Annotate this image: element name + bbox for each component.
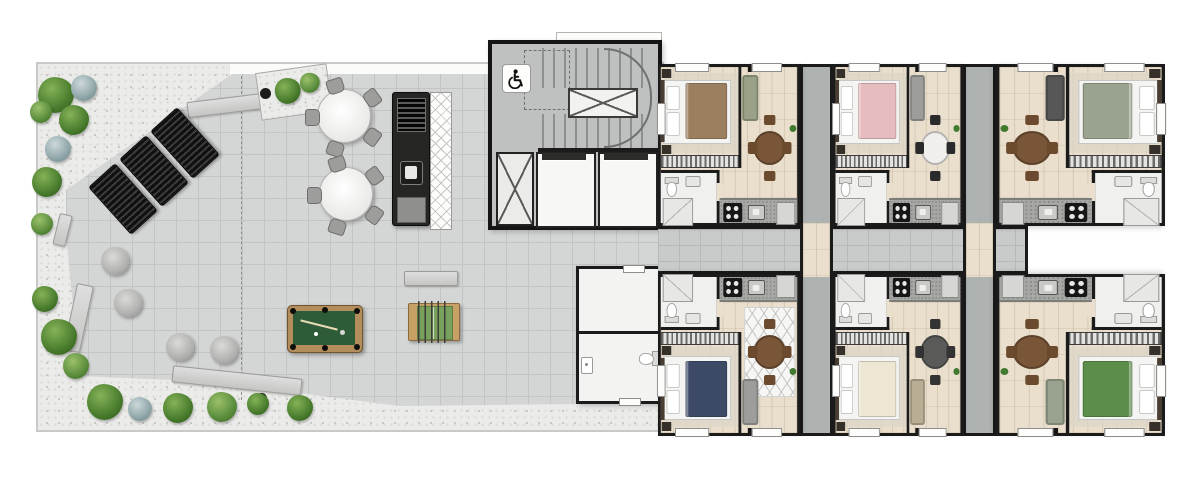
bathroom	[661, 277, 720, 330]
nightstand	[836, 346, 845, 355]
window-opening	[1156, 365, 1166, 397]
nightstand	[836, 422, 845, 431]
stove-burner	[895, 289, 899, 294]
bean-bag-pouf	[101, 247, 129, 275]
dining-chair	[915, 142, 924, 154]
bean-bag-pouf	[210, 336, 238, 364]
service-shaft	[496, 152, 534, 226]
barbecue-grill	[397, 98, 426, 132]
shower	[1123, 198, 1159, 226]
bean-bag-pouf	[166, 333, 194, 361]
bed-blanket	[685, 83, 727, 139]
terrace-chair	[305, 109, 320, 126]
toilet-bowl	[841, 303, 851, 318]
terrace-chair	[307, 187, 322, 204]
dining-chair	[764, 171, 775, 181]
stove-burner	[1078, 289, 1084, 294]
bed-blanket	[858, 83, 896, 139]
room-divider-wall	[579, 331, 659, 334]
plant-pot	[953, 368, 959, 375]
bathroom	[1092, 170, 1162, 223]
stove-burner	[726, 281, 731, 286]
sofa	[910, 75, 925, 121]
shrub	[273, 76, 302, 105]
closet	[661, 332, 741, 345]
shower	[1123, 274, 1159, 302]
terrace-round-table	[319, 167, 373, 221]
kitchen	[999, 198, 1091, 223]
stove-burner	[1069, 206, 1075, 211]
bathroom	[661, 170, 720, 223]
bed-blanket	[1083, 361, 1133, 417]
stove-burner	[1069, 281, 1075, 286]
dining-table	[1013, 335, 1051, 369]
window-opening	[1017, 63, 1053, 72]
plant-pot	[1001, 125, 1009, 132]
kitchen	[889, 198, 960, 223]
window-opening	[1104, 428, 1145, 437]
stove-burner	[734, 289, 739, 294]
dining-chair	[764, 375, 775, 385]
foosball-table	[408, 303, 460, 341]
bed-pillow	[1139, 390, 1155, 414]
bed-pillow	[667, 364, 680, 388]
plant-pot	[790, 125, 797, 132]
stove	[893, 203, 910, 222]
dining-chair	[782, 346, 791, 358]
bathroom-basin	[1114, 176, 1132, 187]
bean-bag-pouf	[114, 289, 142, 317]
pool-ball	[314, 332, 318, 336]
bathroom-basin	[858, 176, 872, 187]
dining-chair	[915, 346, 924, 358]
bathroom-basin	[685, 313, 700, 324]
kitchen	[999, 277, 1091, 302]
elevator-door	[542, 153, 586, 161]
balcony-strip	[963, 64, 996, 226]
stove-burner	[895, 281, 899, 286]
dining-chair	[748, 346, 757, 358]
closet	[661, 155, 741, 168]
stove-burner	[895, 206, 899, 211]
refrigerator	[776, 202, 795, 225]
kitchen-sink	[915, 280, 931, 295]
shower	[837, 198, 865, 226]
elevator-cab	[598, 152, 658, 228]
stove-burner	[726, 206, 731, 211]
refrigerator	[1002, 202, 1025, 225]
refrigerator	[776, 275, 795, 298]
sink-bowl	[1044, 285, 1052, 291]
pool-pocket	[322, 307, 328, 313]
stove-burner	[734, 206, 739, 211]
window-opening	[832, 365, 840, 397]
window-opening	[849, 428, 880, 437]
bed-pillow	[667, 390, 680, 414]
bathroom-basin	[685, 176, 700, 187]
expansion-joint-line	[241, 76, 242, 400]
stove-burner	[1078, 281, 1084, 286]
dining-chair	[764, 319, 775, 329]
stove-burner	[734, 281, 739, 286]
pool-pocket	[322, 345, 328, 351]
stove	[723, 203, 742, 222]
shower	[837, 274, 865, 302]
bed-pillow	[667, 86, 680, 110]
toilet-bowl	[841, 182, 851, 197]
dining-table	[754, 131, 786, 165]
sofa	[1046, 75, 1065, 121]
concrete-bench	[404, 271, 458, 286]
wheelchair-icon	[506, 68, 527, 89]
pool-table	[287, 305, 363, 353]
door-opening	[623, 265, 645, 273]
kitchen-sink	[748, 205, 765, 220]
balcony-strip	[800, 64, 833, 226]
kitchen-sink	[748, 280, 765, 295]
bathroom	[836, 277, 890, 330]
dining-chair	[930, 171, 940, 181]
window-opening	[919, 63, 947, 72]
bedroom-wall	[907, 332, 910, 433]
nightstand	[662, 145, 671, 154]
stove-burner	[726, 289, 731, 294]
shower	[663, 274, 693, 302]
window-opening	[675, 63, 709, 72]
dining-chair	[1025, 115, 1039, 125]
pool-pocket	[354, 344, 360, 350]
kitchen-sink	[1038, 280, 1058, 295]
dining-chair	[947, 142, 956, 154]
nightstand	[1149, 145, 1160, 154]
accessibility-sign	[502, 64, 531, 93]
nightstand	[1149, 346, 1160, 355]
bedroom-wall	[1066, 67, 1069, 168]
floor-plan	[0, 0, 1200, 478]
stove-burner	[902, 281, 906, 286]
stove-burner	[1069, 289, 1075, 294]
stove-burner	[1078, 214, 1084, 219]
sink-bowl	[1044, 209, 1052, 215]
apartment-unit-2	[833, 64, 963, 226]
pool-pocket	[290, 308, 296, 314]
pool-felt	[293, 311, 355, 345]
window-opening	[849, 63, 880, 72]
toilet-bowl	[1142, 182, 1154, 197]
bathroom	[1092, 277, 1162, 330]
bedroom-wall	[907, 67, 910, 168]
dining-chair	[1006, 346, 1017, 358]
closet	[836, 155, 909, 168]
dining-chair	[1047, 142, 1058, 154]
window-opening	[752, 428, 782, 437]
dining-chair	[930, 375, 940, 385]
bedroom-wall	[1066, 332, 1069, 433]
closet	[1067, 332, 1162, 345]
nightstand	[1149, 422, 1160, 431]
dining-chair	[947, 346, 956, 358]
nightstand	[662, 69, 671, 78]
apartment-unit-6	[996, 274, 1165, 436]
dining-chair	[1025, 171, 1039, 181]
refrigerator	[941, 202, 958, 225]
bathroom	[836, 170, 890, 223]
sink-bowl	[920, 209, 926, 215]
balcony-strip	[963, 274, 996, 436]
dining-chair	[1025, 375, 1039, 385]
window-opening	[657, 103, 666, 135]
window-opening	[832, 103, 840, 135]
nightstand	[662, 346, 671, 355]
bed-pillow	[1139, 112, 1155, 136]
window-opening	[1156, 103, 1166, 135]
terrace-round-table	[317, 89, 371, 143]
plant-pot	[953, 125, 959, 132]
stove-burner	[895, 214, 899, 219]
pool-ball	[340, 330, 345, 335]
dining-chair	[1006, 142, 1017, 154]
bed-blanket	[685, 361, 727, 417]
kitchen-sink	[915, 205, 931, 220]
bed-pillow	[841, 390, 853, 414]
sofa	[742, 75, 758, 121]
bathroom-basin	[1114, 313, 1132, 324]
window-opening	[675, 428, 709, 437]
shrub	[299, 71, 322, 94]
bathroom-basin	[858, 313, 872, 324]
door-opening	[619, 398, 641, 406]
closet	[1067, 155, 1162, 168]
core-support-rooms	[576, 266, 662, 404]
wc-basin	[581, 357, 593, 374]
bedroom-wall	[738, 332, 741, 433]
bed-pillow	[841, 364, 853, 388]
planter-pot	[260, 88, 271, 99]
counter-sink	[400, 161, 423, 185]
bedroom-wall	[738, 67, 741, 168]
entry-vestibule	[963, 223, 996, 277]
plant-pot	[790, 368, 797, 375]
wc-toilet-bowl	[639, 353, 654, 365]
pool-pocket	[290, 344, 296, 350]
counter-cabinet	[397, 197, 426, 223]
foosball-rods	[418, 301, 450, 343]
window-opening	[752, 63, 782, 72]
sink-bowl	[405, 166, 417, 179]
kitchen	[720, 277, 798, 302]
bed-pillow	[1139, 86, 1155, 110]
apartment-unit-5	[833, 274, 963, 436]
toilet-bowl	[667, 303, 677, 318]
bed-blanket	[858, 361, 896, 417]
nightstand	[836, 69, 845, 78]
window-opening	[657, 365, 666, 397]
stove-burner	[902, 289, 906, 294]
refrigerator	[1002, 275, 1025, 298]
dining-chair	[782, 142, 791, 154]
sofa	[1046, 379, 1065, 425]
stove	[723, 278, 742, 297]
stove	[1065, 278, 1088, 297]
kitchen-sink	[1038, 205, 1058, 220]
kitchen	[889, 277, 960, 302]
dining-chair	[1047, 346, 1058, 358]
plant-pot	[1001, 368, 1009, 375]
dining-chair	[930, 115, 940, 125]
bed-pillow	[841, 112, 853, 136]
stove-burner	[902, 214, 906, 219]
refrigerator	[941, 275, 958, 298]
sink-bowl	[753, 209, 760, 215]
window-opening	[1104, 63, 1145, 72]
pergola-strip	[430, 92, 452, 230]
nightstand	[1149, 69, 1160, 78]
bed-pillow	[1139, 364, 1155, 388]
grill-counter	[392, 92, 430, 226]
apartment-unit-4	[658, 274, 800, 436]
sofa	[742, 379, 758, 425]
toilet-bowl	[667, 182, 677, 197]
elevator-door	[604, 153, 648, 161]
closet	[836, 332, 909, 345]
basin-drain	[585, 363, 588, 366]
stove-burner	[902, 206, 906, 211]
dining-chair	[930, 319, 940, 329]
dining-chair	[1025, 319, 1039, 329]
pool-pocket	[354, 308, 360, 314]
bed-blanket	[1083, 83, 1133, 139]
stove-burner	[726, 214, 731, 219]
stove	[1065, 203, 1088, 222]
window-opening	[919, 428, 947, 437]
shower	[663, 198, 693, 226]
nightstand	[662, 422, 671, 431]
dining-table	[1013, 131, 1051, 165]
stove-burner	[1078, 206, 1084, 211]
kitchen	[720, 198, 798, 223]
nightstand	[836, 145, 845, 154]
stove-burner	[1069, 214, 1075, 219]
sofa	[910, 379, 925, 425]
sink-bowl	[753, 285, 760, 291]
apartment-unit-1	[658, 64, 800, 226]
sink-bowl	[920, 285, 926, 291]
window-opening	[1017, 428, 1053, 437]
dining-chair	[748, 142, 757, 154]
stove-burner	[734, 214, 739, 219]
balcony-strip	[800, 274, 833, 436]
bed-pillow	[841, 86, 853, 110]
bed-pillow	[667, 112, 680, 136]
stove	[893, 278, 910, 297]
dining-table	[754, 335, 786, 369]
entry-vestibule	[800, 223, 833, 277]
elevator-cab	[536, 152, 596, 228]
dining-chair	[764, 115, 775, 125]
toilet-bowl	[1142, 303, 1154, 318]
apartment-unit-3	[996, 64, 1165, 226]
stair-elevator-core	[488, 40, 662, 230]
